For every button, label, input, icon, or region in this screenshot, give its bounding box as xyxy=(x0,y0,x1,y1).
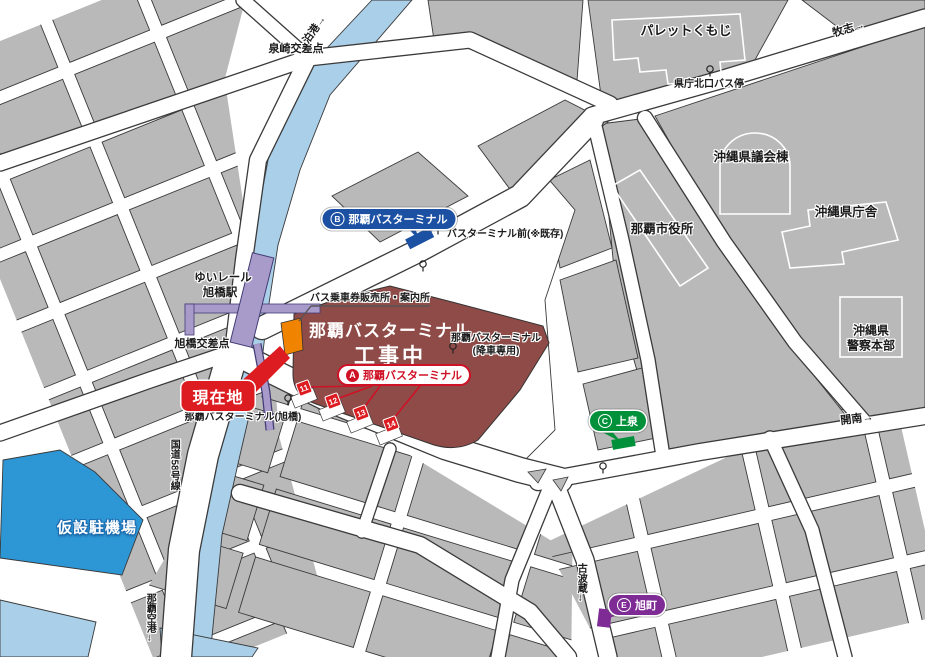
label-police-hq-line1: 沖縄県 xyxy=(853,324,889,339)
label-palette-kumoji: パレットくもじ xyxy=(640,23,731,39)
badge-stop-c: C 上泉 xyxy=(590,411,646,431)
label-temporary-apron: 仮設駐機場 xyxy=(57,520,137,539)
label-prefectural-office: 沖縄県庁舎 xyxy=(815,205,878,221)
label-naha-bt-asahibashi: 那覇バスターミナル(旭橋) xyxy=(185,412,302,425)
stop-a-name: 那覇バスターミナル xyxy=(363,367,462,383)
stop-e-marker xyxy=(597,608,612,627)
label-yui-rail-line1: ゆいレール xyxy=(194,271,252,285)
harbor-water xyxy=(0,600,96,657)
label-dropoff-line2: (降車専用) xyxy=(473,346,520,359)
current-location-badge: 現在地 xyxy=(181,381,254,411)
badge-stop-e: E 旭町 xyxy=(609,595,665,615)
label-asahibashi-crossing: 旭橋交差点 xyxy=(175,338,230,352)
stop-b-letter-icon: B xyxy=(331,212,345,226)
badge-stop-a: A 那覇バスターミナル xyxy=(337,364,471,386)
temporary-apron-area xyxy=(0,450,143,575)
stop-e-name: 旭町 xyxy=(635,597,657,613)
stop-a-letter-icon: A xyxy=(346,369,359,382)
station-building-orange xyxy=(281,318,303,355)
label-police-hq-line2: 警察本部 xyxy=(847,339,895,354)
label-dropoff-line1: 那覇バスターミナル xyxy=(451,333,541,346)
label-prefectural-assembly: 沖縄県議会棟 xyxy=(713,150,788,166)
label-construction-line1: 那覇バスターミナル xyxy=(309,320,471,341)
stop-e-letter-icon: E xyxy=(617,598,631,612)
label-route-58: 国道58号線 xyxy=(167,439,180,490)
stop-b-name: 那覇バスターミナル xyxy=(349,211,448,227)
badge-stop-b: B 那覇バスターミナル xyxy=(323,209,456,229)
label-izumizaki-crossing: 泉崎交差点 xyxy=(269,43,324,57)
label-kencho-north-bus-stop: 県庁北口バス停 xyxy=(674,79,744,92)
label-naha-airport-direction: 那覇空港→ xyxy=(143,593,156,643)
label-naha-city-hall: 那覇市役所 xyxy=(631,222,694,238)
label-yui-rail-line2: 旭橋駅 xyxy=(203,286,238,300)
label-kohagura-direction: 古波蔵→ xyxy=(574,563,587,603)
stop-c-name: 上泉 xyxy=(616,413,638,429)
naha-bus-terminal-construction-map: 泉崎交差点 泊港→ パレットくもじ 牧志→ 県庁北口バス停 沖縄県議会棟 那覇市… xyxy=(0,0,925,657)
stop-c-letter-icon: C xyxy=(598,414,612,428)
label-bus-terminal-mae-existing: バスターミナル前(※既存) xyxy=(447,229,563,242)
label-ticket-office: バス乗車券販売所・案内所 xyxy=(310,293,430,306)
